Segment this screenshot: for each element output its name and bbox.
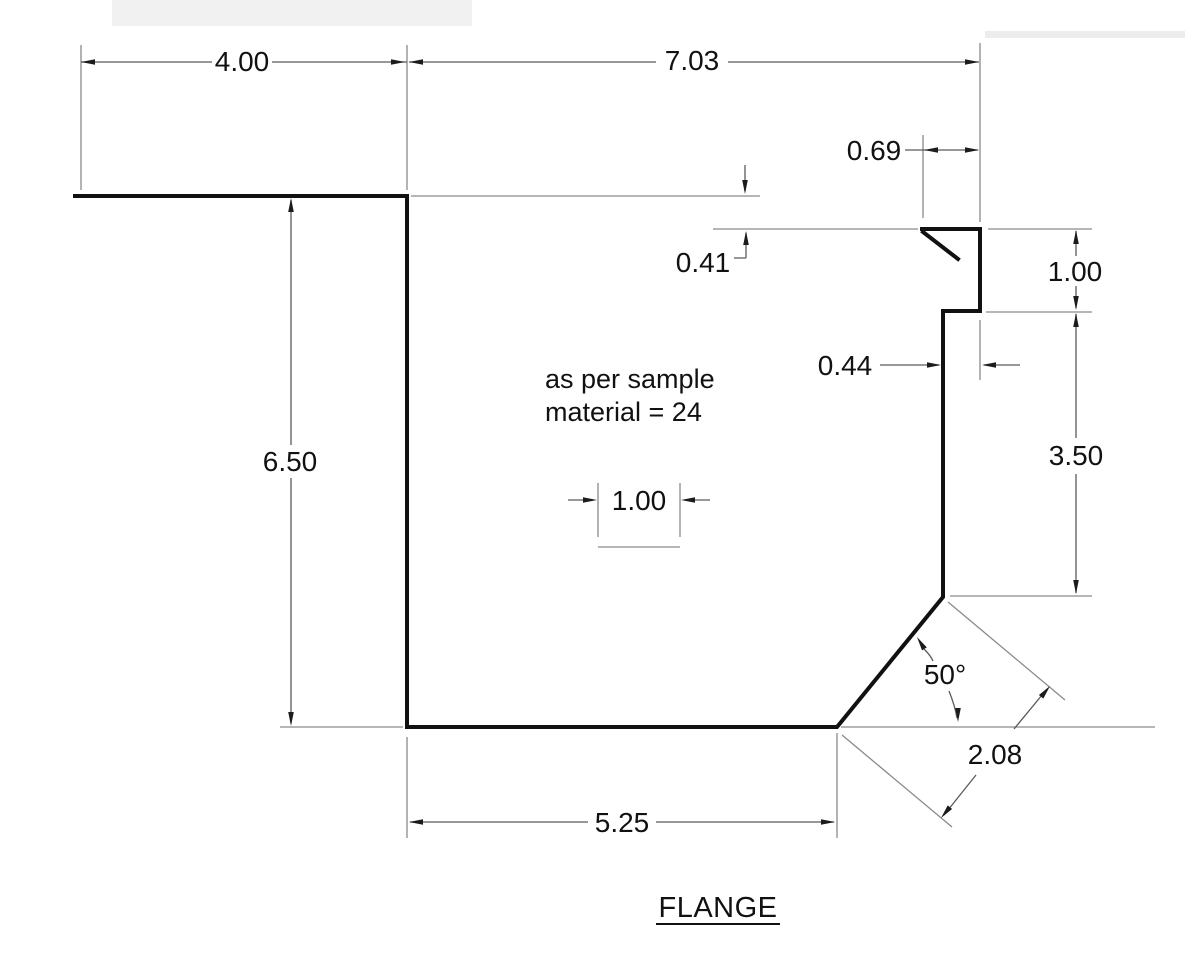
arrowhead	[1073, 313, 1079, 327]
dim-label-upper-right-height: 1.00	[1048, 256, 1103, 287]
dim-bottom-width: 5.25	[409, 807, 835, 838]
arrowhead	[681, 497, 695, 503]
arrowhead	[81, 59, 95, 65]
arrowhead	[743, 231, 749, 245]
dim-label-bend-diagonal: 2.08	[968, 739, 1023, 770]
arrowhead	[924, 147, 938, 153]
arrowhead	[288, 198, 294, 212]
arrowhead	[391, 59, 405, 65]
arrowhead	[917, 637, 927, 650]
drawing-title-block: FLANGE	[656, 892, 780, 924]
arrowhead	[409, 59, 423, 65]
arrowhead	[583, 497, 597, 503]
scan-artifact	[985, 31, 1185, 38]
arrowhead	[965, 59, 979, 65]
dim-center-flat: 1.00	[568, 483, 710, 547]
dim-label-top-right-width: 7.03	[665, 45, 720, 76]
drawing-canvas: 4.00 7.03 0.69 0.41 1.00 0.44	[0, 0, 1200, 960]
arrowhead	[982, 362, 996, 368]
extension-lines	[81, 43, 1155, 838]
dim-label-lower-right-height: 3.50	[1049, 440, 1104, 471]
arrowhead	[288, 712, 294, 726]
dim-bend-angle: 50°	[917, 637, 966, 722]
dim-hem-drop: 0.41	[676, 165, 749, 278]
dim-label-left-height: 6.50	[263, 446, 318, 477]
ext-line	[842, 735, 952, 827]
note-line-1: as per sample	[545, 364, 715, 394]
drawing-title: FLANGE	[658, 892, 777, 924]
arrowhead	[1073, 230, 1079, 244]
arrowhead	[927, 362, 941, 368]
flange-drawing-sheet: 4.00 7.03 0.69 0.41 1.00 0.44	[0, 0, 1200, 960]
arrowhead	[742, 180, 748, 194]
note-line-2: material = 24	[545, 397, 702, 427]
dim-top-left-width: 4.00	[81, 46, 407, 77]
dim-hem-width: 0.69	[847, 135, 979, 166]
dim-label-top-left-width: 4.00	[215, 46, 270, 77]
material-note: as per sample material = 24	[545, 364, 715, 427]
angle-leader	[949, 691, 957, 718]
dim-upper-right-height: 1.00	[1048, 230, 1103, 310]
flange-profile-outline	[75, 196, 980, 727]
dim-left-height: 6.50	[263, 198, 318, 726]
arrowhead	[1073, 296, 1079, 310]
dim-label-bottom-width: 5.25	[595, 807, 650, 838]
arrowhead	[409, 819, 423, 825]
arrowhead	[965, 147, 979, 153]
dim-label-bend-angle: 50°	[924, 659, 966, 690]
dim-label-step-offset: 0.44	[818, 350, 873, 381]
arrowhead	[821, 819, 835, 825]
dim-top-right-width: 7.03	[409, 45, 979, 76]
dim-label-hem-width: 0.69	[847, 135, 902, 166]
dim-label-center-flat: 1.00	[612, 485, 667, 516]
dim-step-offset: 0.44	[818, 350, 1020, 381]
dim-bend-diagonal: 2.08	[941, 686, 1050, 818]
dim-label-hem-drop: 0.41	[676, 247, 731, 278]
scan-artifact	[112, 0, 472, 26]
arrowhead	[1073, 580, 1079, 594]
dim-lower-right-height: 3.50	[1049, 313, 1104, 594]
